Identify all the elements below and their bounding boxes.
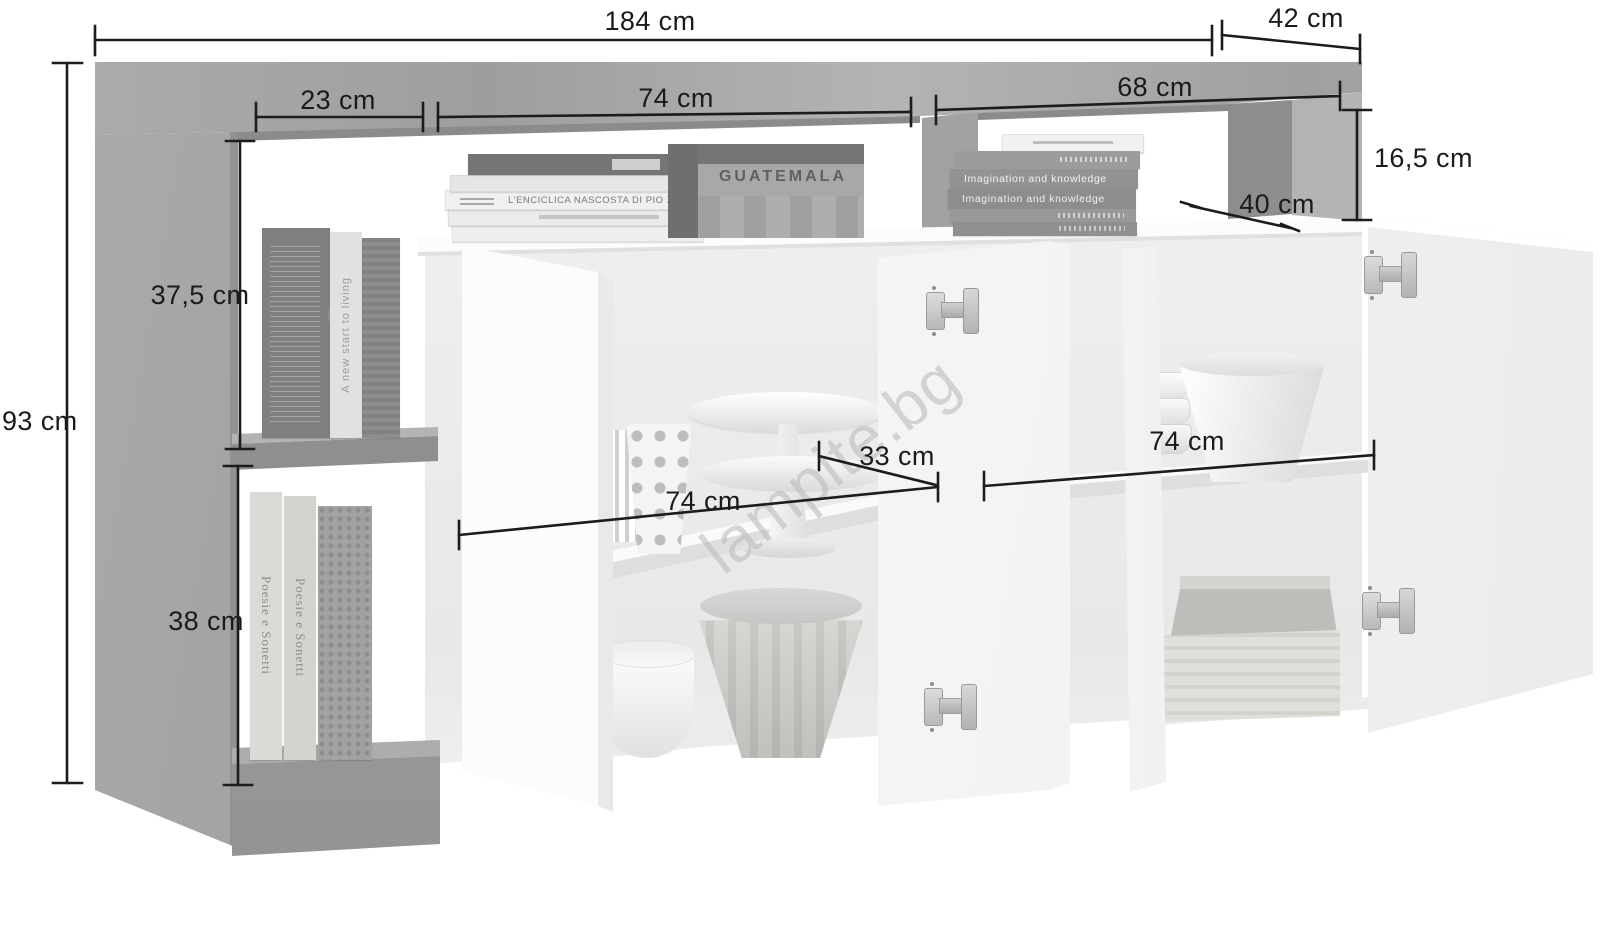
dim-left-compartment-width: 74 cm <box>633 486 773 517</box>
dim-top-niche-left-width: 74 cm <box>606 83 746 114</box>
dim-total-height: 93 cm <box>2 406 70 437</box>
dim-upper-cubby-height: 37,5 cm <box>120 280 280 311</box>
product-dimension-diagram: ed A new start to living Poesie e Sonett… <box>0 0 1600 927</box>
dim-top-niche-height: 16,5 cm <box>1374 143 1504 174</box>
dim-right-compartment-width: 74 cm <box>1117 426 1257 457</box>
dim-lower-cubby-height: 38 cm <box>136 606 276 637</box>
dim-top-niche-depth: 40 cm <box>1207 189 1347 220</box>
dim-total-depth: 42 cm <box>1236 3 1376 34</box>
dim-total-width: 184 cm <box>560 6 740 37</box>
dimension-lines <box>0 0 1600 927</box>
dim-shelf-depth: 33 cm <box>827 441 967 472</box>
dim-left-cubby-width: 23 cm <box>278 85 398 116</box>
dim-top-niche-right-width: 68 cm <box>1085 72 1225 103</box>
